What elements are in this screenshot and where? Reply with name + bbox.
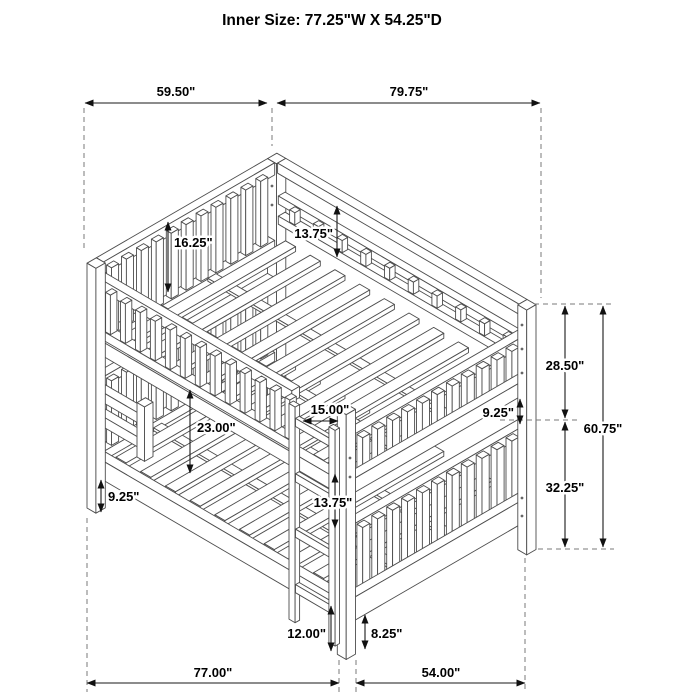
dim-top-depth: 59.50"	[157, 84, 196, 99]
dim-top-width: 79.75"	[390, 84, 429, 99]
diagram-canvas: Inner Size: 77.25"W X 54.25"D 59	[0, 0, 700, 700]
bunk-bed-dimension-diagram: Inner Size: 77.25"W X 54.25"D 59	[0, 0, 700, 700]
dim-lower-section: 32.25"	[546, 480, 585, 495]
dim-back-rail-panel: 13.75"	[294, 226, 333, 241]
dim-first-rung: 12.00"	[287, 626, 326, 641]
dim-base-depth: 54.00"	[422, 665, 461, 680]
dim-rung-spacing: 13.75"	[314, 495, 353, 510]
dim-rail-floor-clearance: 9.25"	[108, 489, 139, 504]
dim-lower-frame: 8.25"	[371, 626, 402, 641]
dim-overall-height: 60.75"	[584, 421, 623, 436]
dim-footboard-gap: 9.25"	[483, 405, 514, 420]
dim-ladder-width: 15.00"	[311, 402, 350, 417]
dim-headboard-panel: 16.25"	[174, 235, 213, 250]
dim-base-width: 77.00"	[194, 665, 233, 680]
dim-upper-section: 28.50"	[546, 358, 585, 373]
diagram-title: Inner Size: 77.25"W X 54.25"D	[222, 12, 442, 29]
dim-bunk-clearance: 23.00"	[197, 420, 236, 435]
